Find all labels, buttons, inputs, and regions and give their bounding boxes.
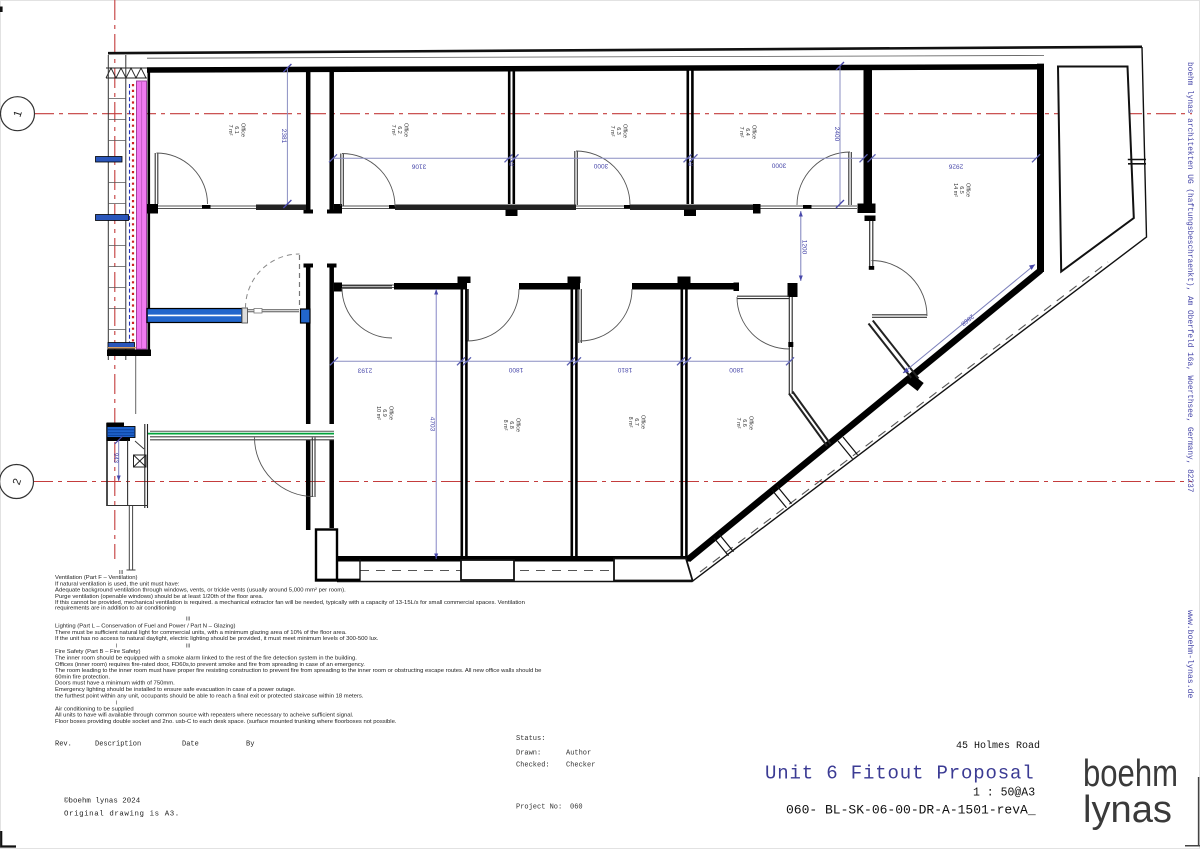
svg-text:Office: Office [514,418,520,432]
svg-text:Office: Office [747,416,753,430]
svg-text:2926: 2926 [948,163,963,170]
svg-text:III: III [186,617,190,623]
svg-text:Office: Office [621,124,627,138]
svg-text:7 m²: 7 m² [735,418,741,429]
svg-text:Purge ventilation (openable wi: Purge ventilation (openable windows) sho… [55,594,264,600]
svg-text:8 m²: 8 m² [502,420,508,431]
svg-text:2381: 2381 [280,129,287,144]
svg-text:Office: Office [387,406,393,420]
svg-text:7 m²: 7 m² [609,126,615,137]
svg-text:Author: Author [566,750,591,758]
svg-text:©boehm lynas 2024: ©boehm lynas 2024 [64,797,141,806]
svg-text:10 m²: 10 m² [375,406,381,420]
svg-text:Fire Safety (Part B – Fire Saf: Fire Safety (Part B – Fire Safety) [55,649,140,655]
svg-text:060: 060 [570,804,583,812]
svg-text:6.5: 6.5 [958,186,964,194]
svg-text:boehm lynas architekten UG (ha: boehm lynas architekten UG (haftungsbesc… [1185,62,1193,493]
svg-text:Office: Office [639,415,645,429]
svg-text:Status:: Status: [516,735,545,743]
svg-text:2193: 2193 [357,367,372,374]
svg-text:6.8: 6.8 [508,421,514,429]
svg-text:Floor boxes providing double s: Floor boxes providing double socket and … [55,719,397,725]
svg-text:6.6: 6.6 [741,419,747,427]
svg-text:Office: Office [402,123,408,137]
svg-text:943: 943 [112,453,118,464]
svg-text:3106: 3106 [411,163,426,170]
svg-text:Date: Date [182,741,199,749]
svg-text:7 m²: 7 m² [227,125,233,136]
svg-text:1810: 1810 [617,366,632,373]
svg-text:2400: 2400 [833,127,840,142]
svg-text:Doors must have a minimum widt: Doors must have a minimum width of 750mm… [55,681,175,687]
svg-text:Air conditioning to be supplie: Air conditioning to be supplied [55,706,134,712]
svg-text:6.2: 6.2 [396,126,402,134]
svg-text:25: 25 [509,161,515,167]
svg-text:Project No:: Project No: [516,804,562,812]
svg-text:If the unit has no access to n: If the unit has no access to natural day… [55,636,379,642]
svg-text:3000: 3000 [771,162,786,169]
svg-text:Office: Office [239,123,245,137]
svg-text:Offices (inner room) requires: Offices (inner room) requires fire-rated… [55,662,365,668]
svg-text:7 m²: 7 m² [738,127,744,138]
svg-text:25: 25 [688,161,694,167]
svg-text:1800: 1800 [729,366,744,373]
svg-text:3000: 3000 [593,162,608,169]
svg-text:Office: Office [750,125,756,139]
svg-text:requirements are in addition t: requirements are in addition to air cond… [55,606,176,612]
svg-text:the furthest point within any: the furthest point within any unit, occu… [55,693,364,699]
svg-text:Original drawing is A3.: Original drawing is A3. [64,810,180,818]
svg-text:Adequate background ventilatio: Adequate background ventilation through … [55,588,346,594]
svg-text:1800: 1800 [508,366,523,373]
svg-text:Emergency lighting should be i: Emergency lighting should be installed t… [55,687,296,693]
svg-text:060- BL-SK-06-00-DR-A-1501-rev: 060- BL-SK-06-00-DR-A-1501-revA_ [786,803,1036,818]
svg-text:By: By [246,741,254,749]
svg-text:6.3: 6.3 [615,127,621,135]
svg-text:Checker: Checker [566,762,595,770]
svg-text:Office: Office [964,183,970,197]
svg-text:There must be sufficient natur: There must be sufficient natural light f… [55,630,347,636]
svg-text:III: III [186,644,190,650]
svg-text:1 : 50@A3: 1 : 50@A3 [973,787,1035,800]
svg-text:45 Holmes Road: 45 Holmes Road [956,740,1040,752]
svg-text:All units to have wifi availab: All units to have wifi available through… [55,713,354,719]
svg-text:60min fire protection.: 60min fire protection. [55,674,110,680]
svg-text:14 m²: 14 m² [952,183,958,197]
svg-text:If natural ventilation is used: If natural ventilation is used, the unit… [55,581,180,587]
svg-text:www.boehm-lynas.de: www.boehm-lynas.de [1185,610,1195,699]
svg-text:6.1: 6.1 [233,126,239,134]
svg-text:The room leading to the inner: The room leading to the inner room must … [55,668,542,674]
svg-text:8 m²: 8 m² [627,417,633,428]
svg-text:Ventilation (Part F – Ventilat: Ventilation (Part F – Ventilation) [55,575,138,581]
svg-text:7 m²: 7 m² [390,125,396,136]
svg-text:The inner room should be equip: The inner room should be equipped with a… [55,656,357,662]
svg-text:1200: 1200 [801,240,808,255]
svg-text:Unit 6 Fitout Proposal: Unit 6 Fitout Proposal [765,763,1035,785]
svg-text:Lighting (Part L – Conservatio: Lighting (Part L – Conservation of Fuel … [55,624,236,630]
svg-text:lynas: lynas [1083,789,1172,831]
svg-text:4703: 4703 [429,417,436,432]
svg-text:Drawn:: Drawn: [516,750,541,758]
svg-text:6.4: 6.4 [744,128,750,136]
svg-text:Checked:: Checked: [516,762,550,770]
svg-text:6.7: 6.7 [633,418,639,426]
svg-text:6.9: 6.9 [381,409,387,417]
svg-text:Description: Description [95,741,141,749]
svg-text:Rev.: Rev. [55,741,72,749]
